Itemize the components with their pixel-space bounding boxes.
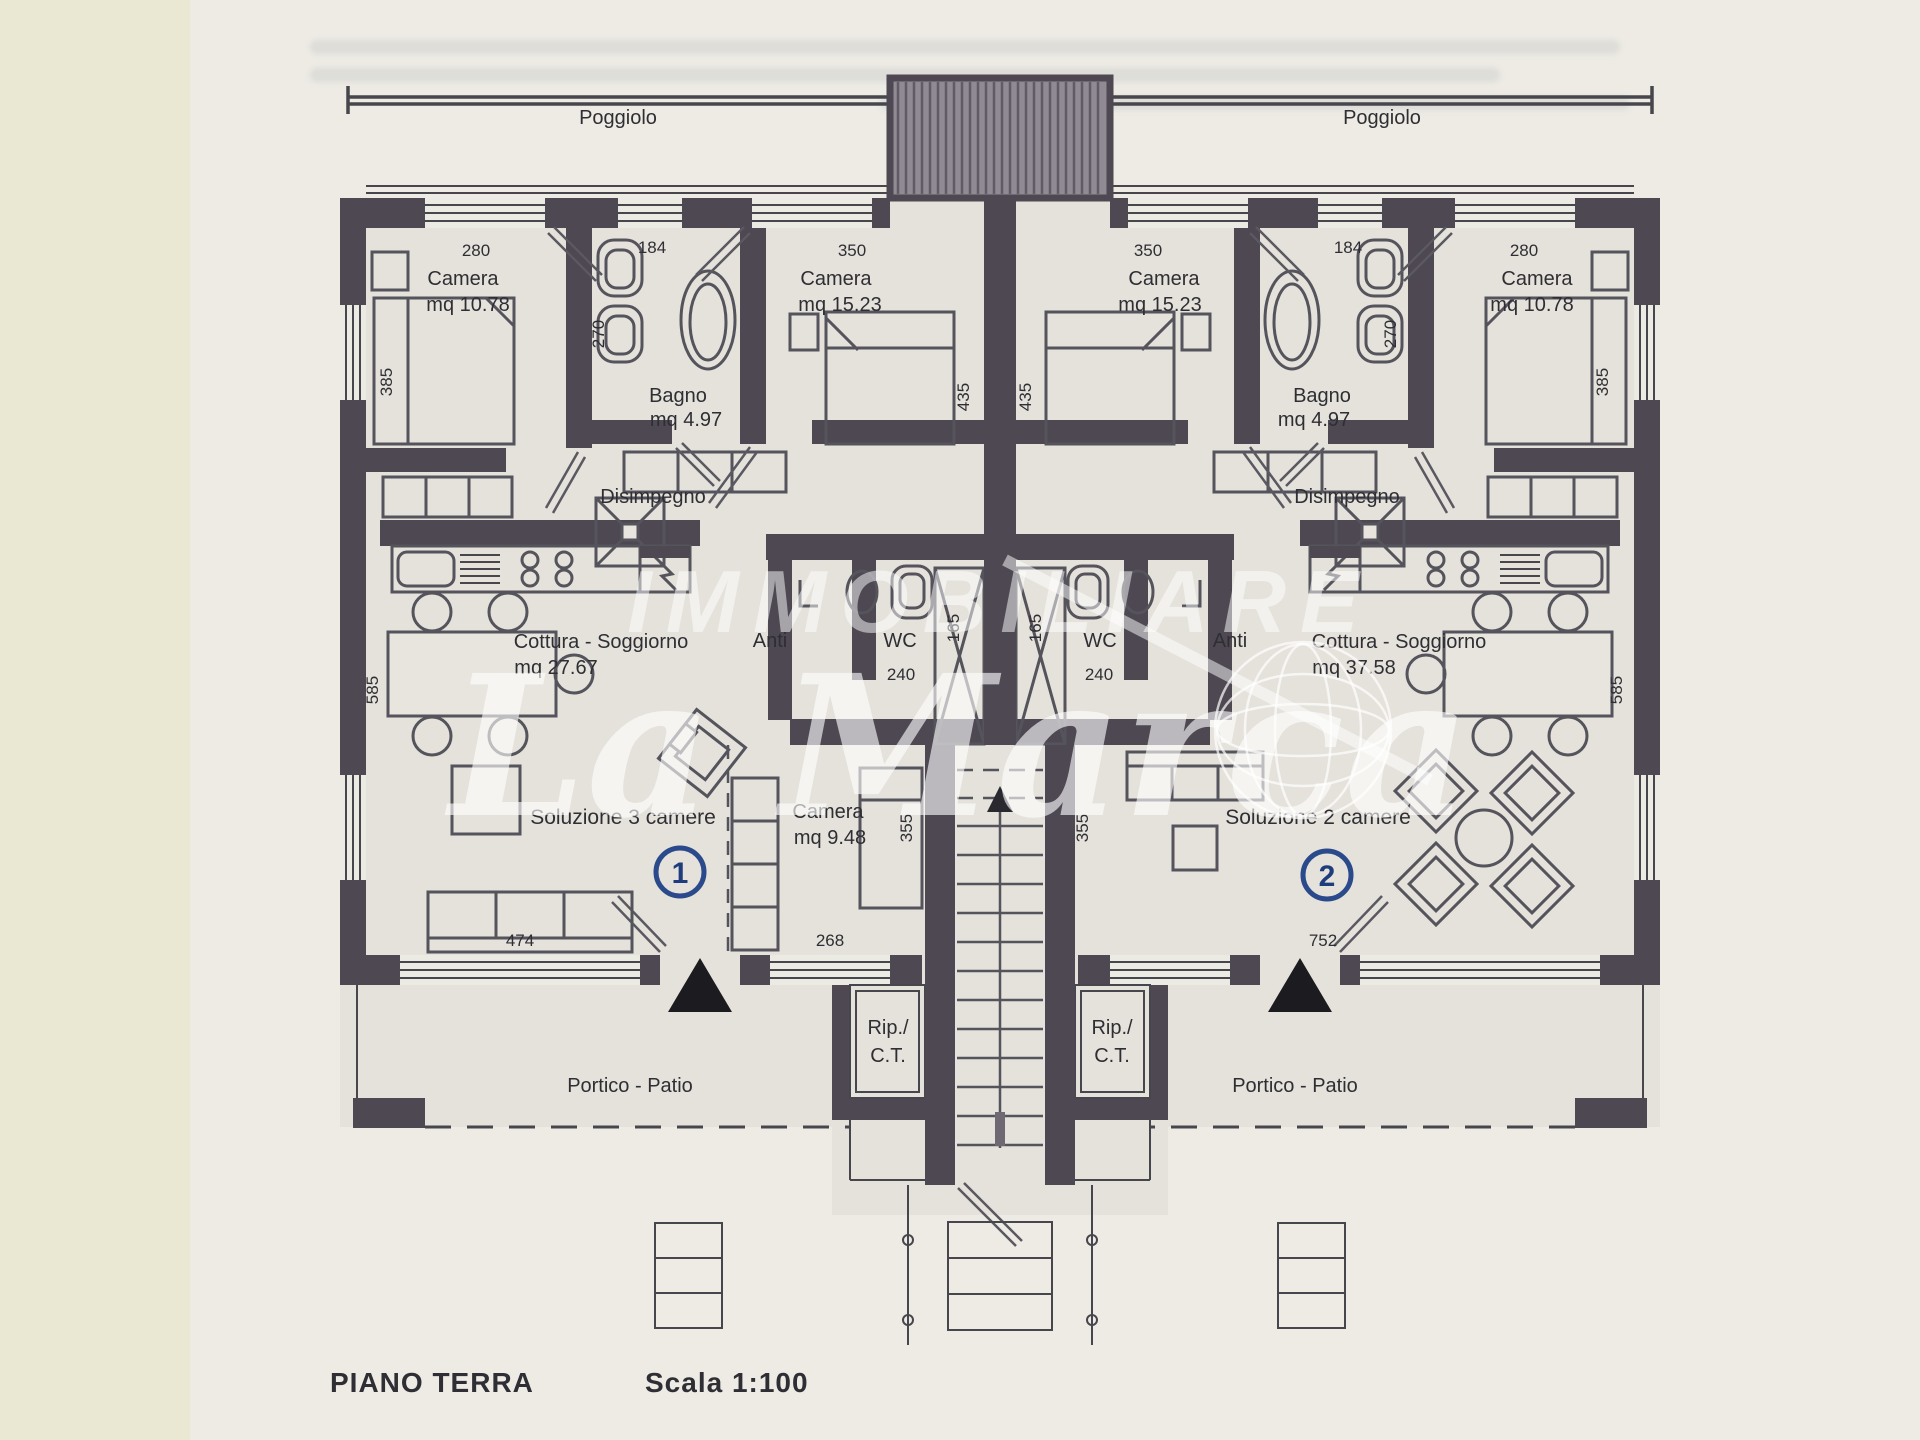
room-right-rip-line2: C.T. [1094,1045,1130,1067]
area-right-camera1: mq 15.23 [1118,294,1201,316]
dim-right-soggiorno-depth: 585 [1607,676,1626,704]
room-left-rip-line2: C.T. [870,1045,906,1067]
room-right-portico: Portico - Patio [1232,1075,1358,1097]
watermark-lamarca: La Marca [444,632,1470,861]
area-left-camera1: mq 10.78 [426,294,509,316]
dim-right-window1: 752 [1309,931,1337,950]
dim-left-bagno-width: 184 [638,238,666,257]
dim-left-soggiorno-depth: 585 [363,676,382,704]
balcony-label-right: Poggiolo [1343,107,1421,129]
scale-label: Scala 1:100 [645,1367,809,1398]
unit-number-2: 2 [1319,860,1336,893]
room-right-disimpegno: Disimpegno [1294,486,1400,508]
dim-right-bagno-depth: 270 [1381,320,1400,348]
area-left-bagno: mq 4.97 [650,409,722,431]
room-right-camera1: Camera [1128,268,1200,290]
room-right-rip-line1: Rip./ [1091,1017,1133,1039]
dim-right-camera2-depth: 385 [1593,368,1612,396]
dim-right-bagno-width: 184 [1334,238,1362,257]
dim-left-bagno-depth: 270 [589,320,608,348]
dim-left-camera2-width: 350 [838,241,866,260]
dim-right-camera1-width: 350 [1134,241,1162,260]
area-right-camera2: mq 10.78 [1490,294,1573,316]
room-left-rip-line1: Rip./ [867,1017,909,1039]
dim-left-window2: 268 [816,931,844,950]
stair-tower-hatched-roof [890,78,1110,198]
room-left-camera1: Camera [427,268,499,290]
balcony-label-left: Poggiolo [579,107,657,129]
dim-left-camera1-depth: 385 [377,368,396,396]
floor-title: PIANO TERRA [330,1367,534,1398]
dim-right-camera1-depth: 435 [1016,383,1035,411]
area-right-bagno: mq 4.97 [1278,409,1350,431]
room-left-portico: Portico - Patio [567,1075,693,1097]
room-left-bagno: Bagno [649,385,707,407]
room-right-camera2: Camera [1501,268,1573,290]
floorplan-drawing: Poggiolo Poggiolo 280 Camera mq 10.78 38… [0,0,1920,1440]
room-left-camera2: Camera [800,268,872,290]
room-left-disimpegno: Disimpegno [600,486,706,508]
dim-left-camera2-depth: 435 [954,383,973,411]
dim-right-camera2-width: 280 [1510,241,1538,260]
unit-number-1: 1 [672,857,689,890]
dim-left-camera1-width: 280 [462,241,490,260]
scanned-floorplan-page: Poggiolo Poggiolo 280 Camera mq 10.78 38… [0,0,1920,1440]
photo-margin-strip [0,0,190,1440]
area-left-camera2: mq 15.23 [798,294,881,316]
dim-left-window1: 474 [506,931,534,950]
room-right-bagno: Bagno [1293,385,1351,407]
